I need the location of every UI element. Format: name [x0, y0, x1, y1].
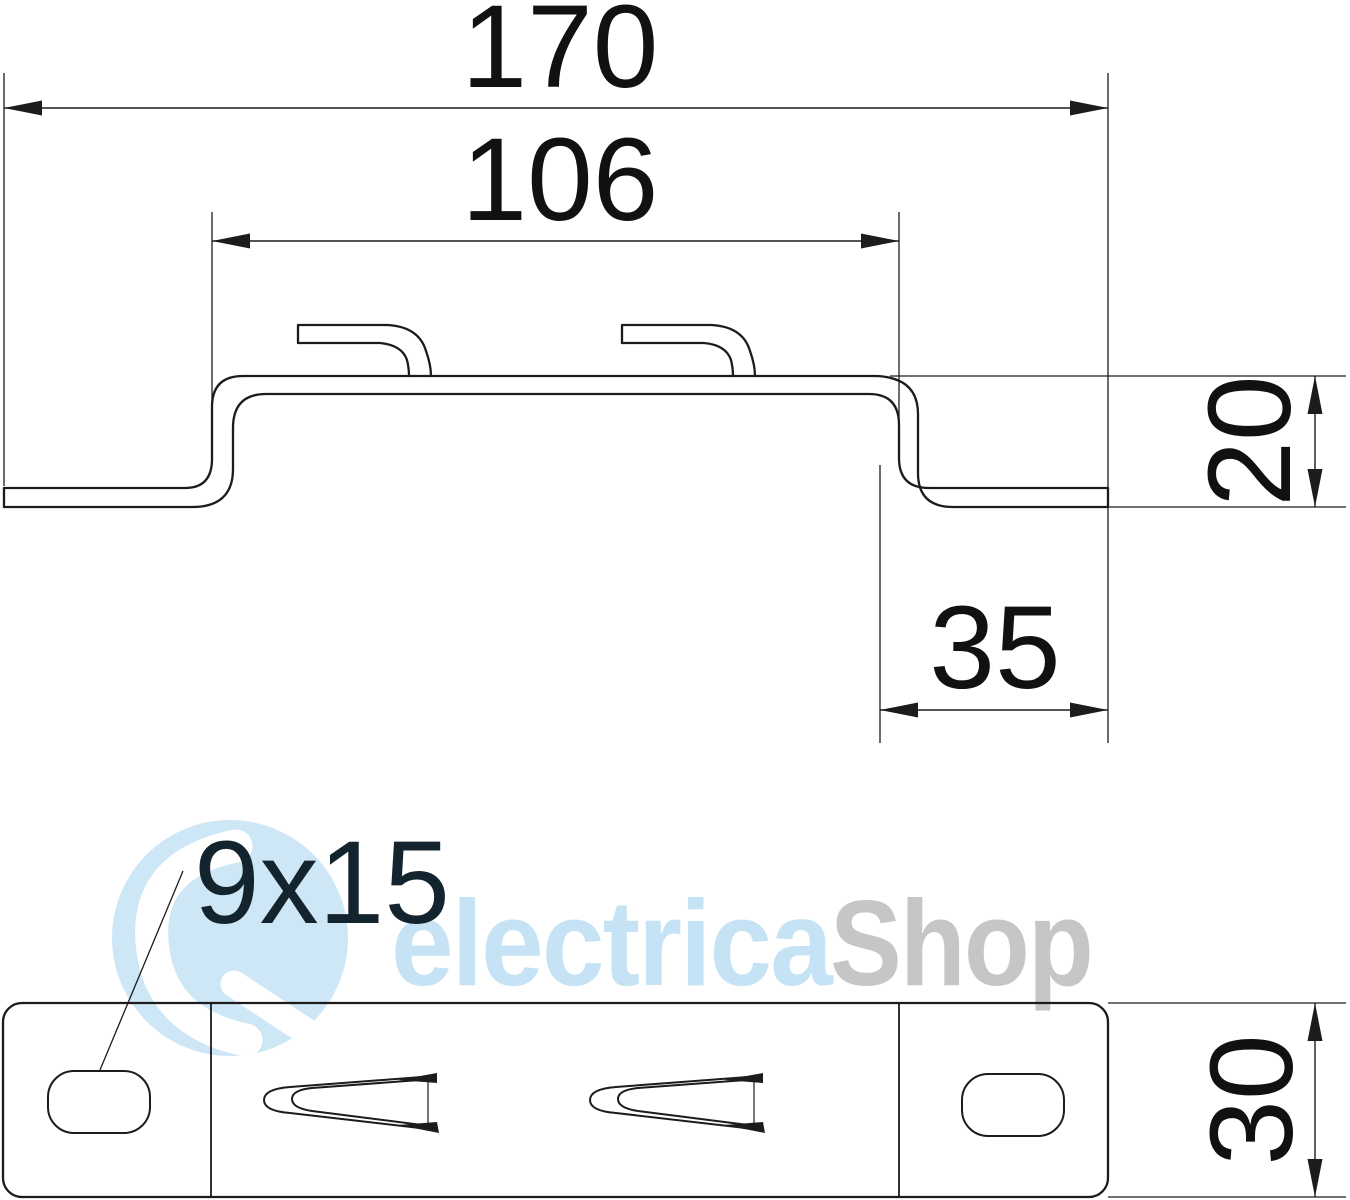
tab-left: [298, 325, 431, 376]
dim-text-35: 35: [929, 582, 1060, 714]
slot-size-label: 9x15: [194, 817, 450, 949]
profile-contour-lower: [4, 394, 1108, 507]
slot-hole-left: [48, 1071, 150, 1133]
drawing-canvas: electrica Shop: [0, 0, 1350, 1200]
brand-text-secondary: Shop: [830, 875, 1092, 1011]
louver-right: [590, 1073, 765, 1133]
side-view: [4, 325, 1108, 507]
dim-text-30: 30: [1186, 1034, 1318, 1165]
technical-drawing-page: electrica Shop: [0, 0, 1350, 1200]
slot-hole-right: [962, 1074, 1064, 1136]
louver-left: [264, 1073, 439, 1133]
tab-right: [622, 325, 755, 376]
dimension-30: 30: [1108, 1003, 1346, 1197]
dimension-106: 106: [212, 114, 899, 462]
dim-text-106: 106: [462, 114, 659, 246]
dim-text-170: 170: [462, 0, 659, 113]
dim-text-20: 20: [1184, 375, 1316, 506]
brand-text-primary: electrica: [391, 875, 834, 1011]
